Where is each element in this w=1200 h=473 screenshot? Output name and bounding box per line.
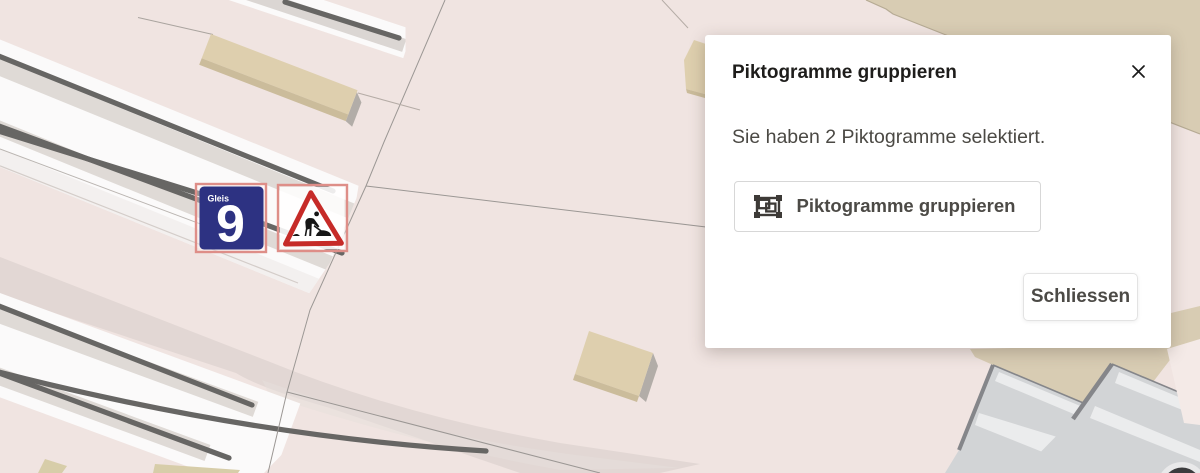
svg-text:9: 9 bbox=[216, 196, 245, 254]
